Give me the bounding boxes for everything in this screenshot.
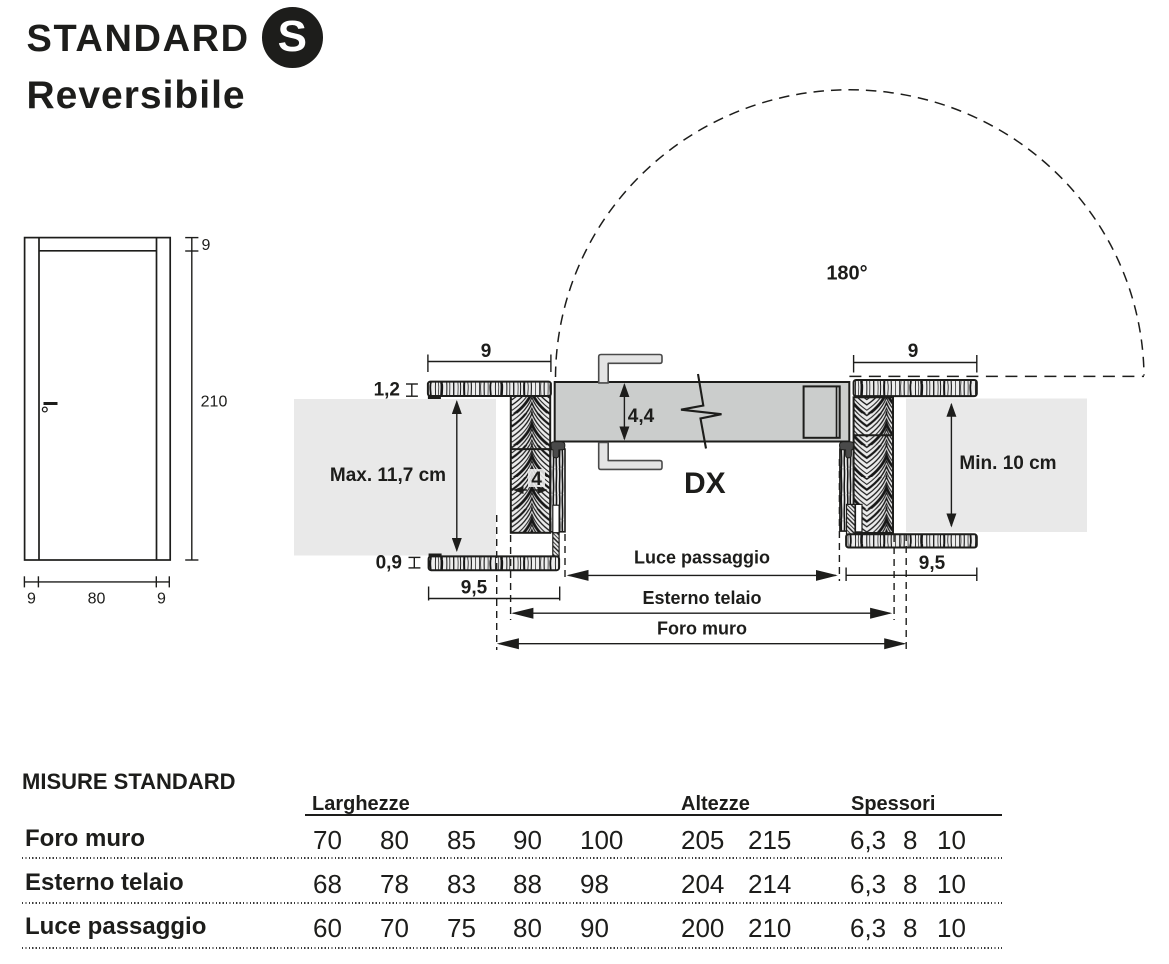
svg-text:9: 9	[202, 237, 211, 254]
svg-text:9: 9	[908, 341, 919, 362]
svg-text:Esterno telaio: Esterno telaio	[642, 588, 761, 608]
svg-text:DX: DX	[684, 467, 726, 500]
svg-text:80: 80	[88, 591, 106, 608]
svg-text:180°: 180°	[826, 263, 867, 285]
svg-text:9,5: 9,5	[461, 578, 488, 599]
svg-text:9: 9	[481, 341, 492, 362]
svg-text:0,9: 0,9	[376, 553, 402, 574]
svg-text:210: 210	[201, 394, 228, 411]
svg-text:9: 9	[157, 591, 166, 608]
svg-text:Max. 11,7 cm: Max. 11,7 cm	[330, 465, 446, 486]
svg-text:9: 9	[27, 591, 36, 608]
svg-text:9,5: 9,5	[919, 553, 946, 574]
svg-text:Min. 10 cm: Min. 10 cm	[959, 453, 1056, 474]
svg-text:Luce passaggio: Luce passaggio	[634, 548, 770, 568]
svg-text:1,2: 1,2	[374, 380, 400, 401]
svg-text:4,4: 4,4	[628, 406, 655, 427]
svg-text:4: 4	[531, 469, 542, 490]
svg-text:Foro muro: Foro muro	[657, 619, 747, 639]
